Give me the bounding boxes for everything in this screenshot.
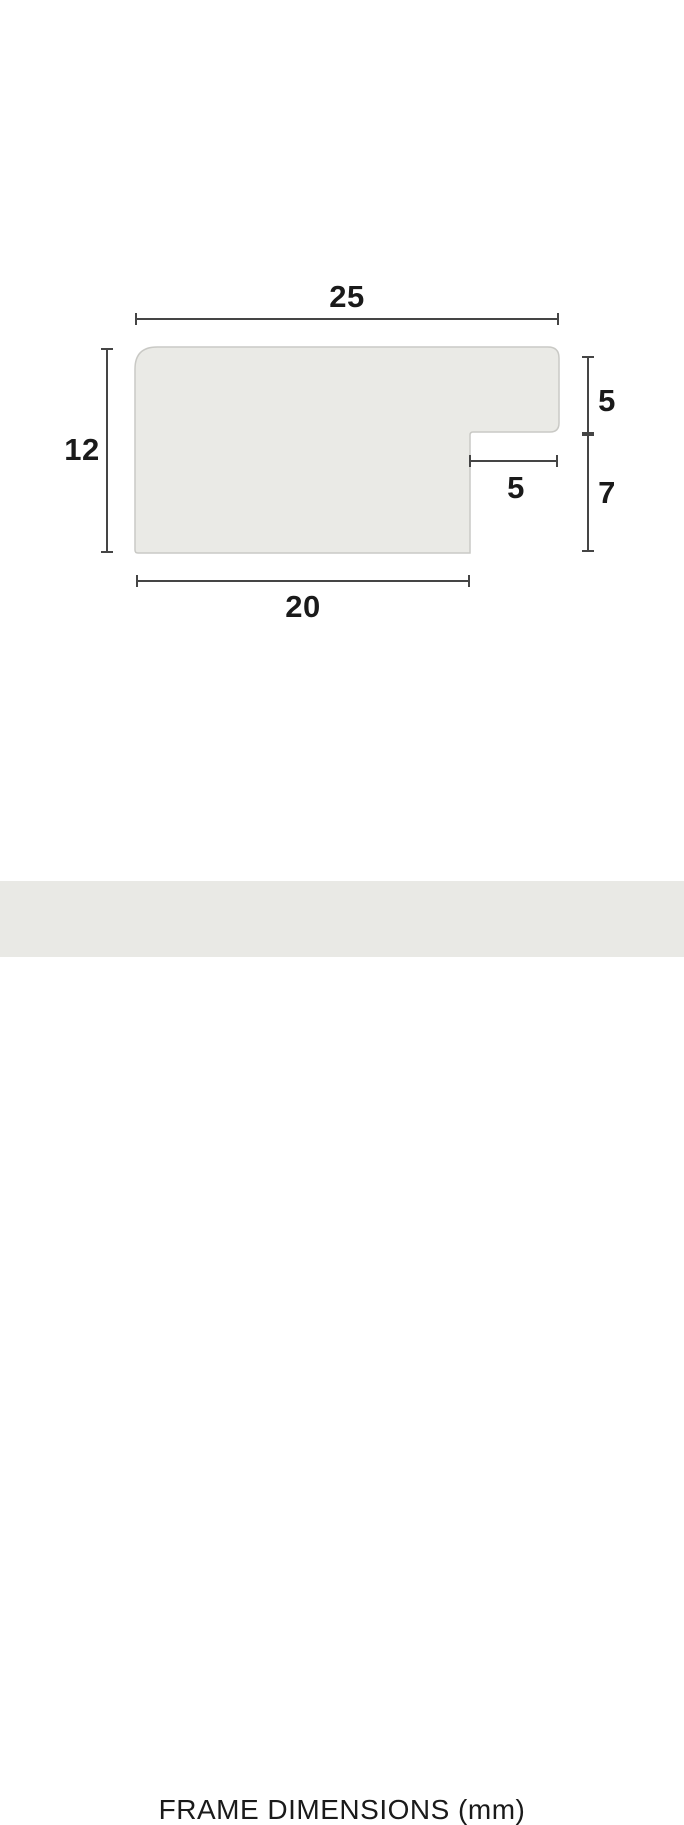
- top-width-dimension-line: [135, 318, 559, 320]
- left-height-dimension-line: [106, 348, 108, 553]
- footer-bar: FRAME DIMENSIONS (mm): [0, 881, 684, 957]
- bottom-width-dimension-line: [136, 580, 470, 582]
- bottom-width-label: 20: [136, 590, 470, 624]
- right-upper-height-label: 5: [587, 384, 627, 418]
- rabbet-width-label: 5: [469, 471, 563, 505]
- footer-title: FRAME DIMENSIONS (mm): [0, 1796, 684, 1824]
- frame-profile-diagram: 25 12 5 7 5 20: [0, 0, 684, 957]
- right-upper-height-dimension-line: [587, 356, 589, 434]
- right-lower-height-dimension-line: [587, 434, 589, 552]
- rabbet-width-dimension-line: [469, 460, 558, 462]
- right-lower-height-label: 7: [587, 476, 627, 510]
- top-width-label: 25: [135, 280, 559, 314]
- left-height-label: 12: [58, 433, 106, 467]
- frame-profile-shape: [0, 0, 684, 957]
